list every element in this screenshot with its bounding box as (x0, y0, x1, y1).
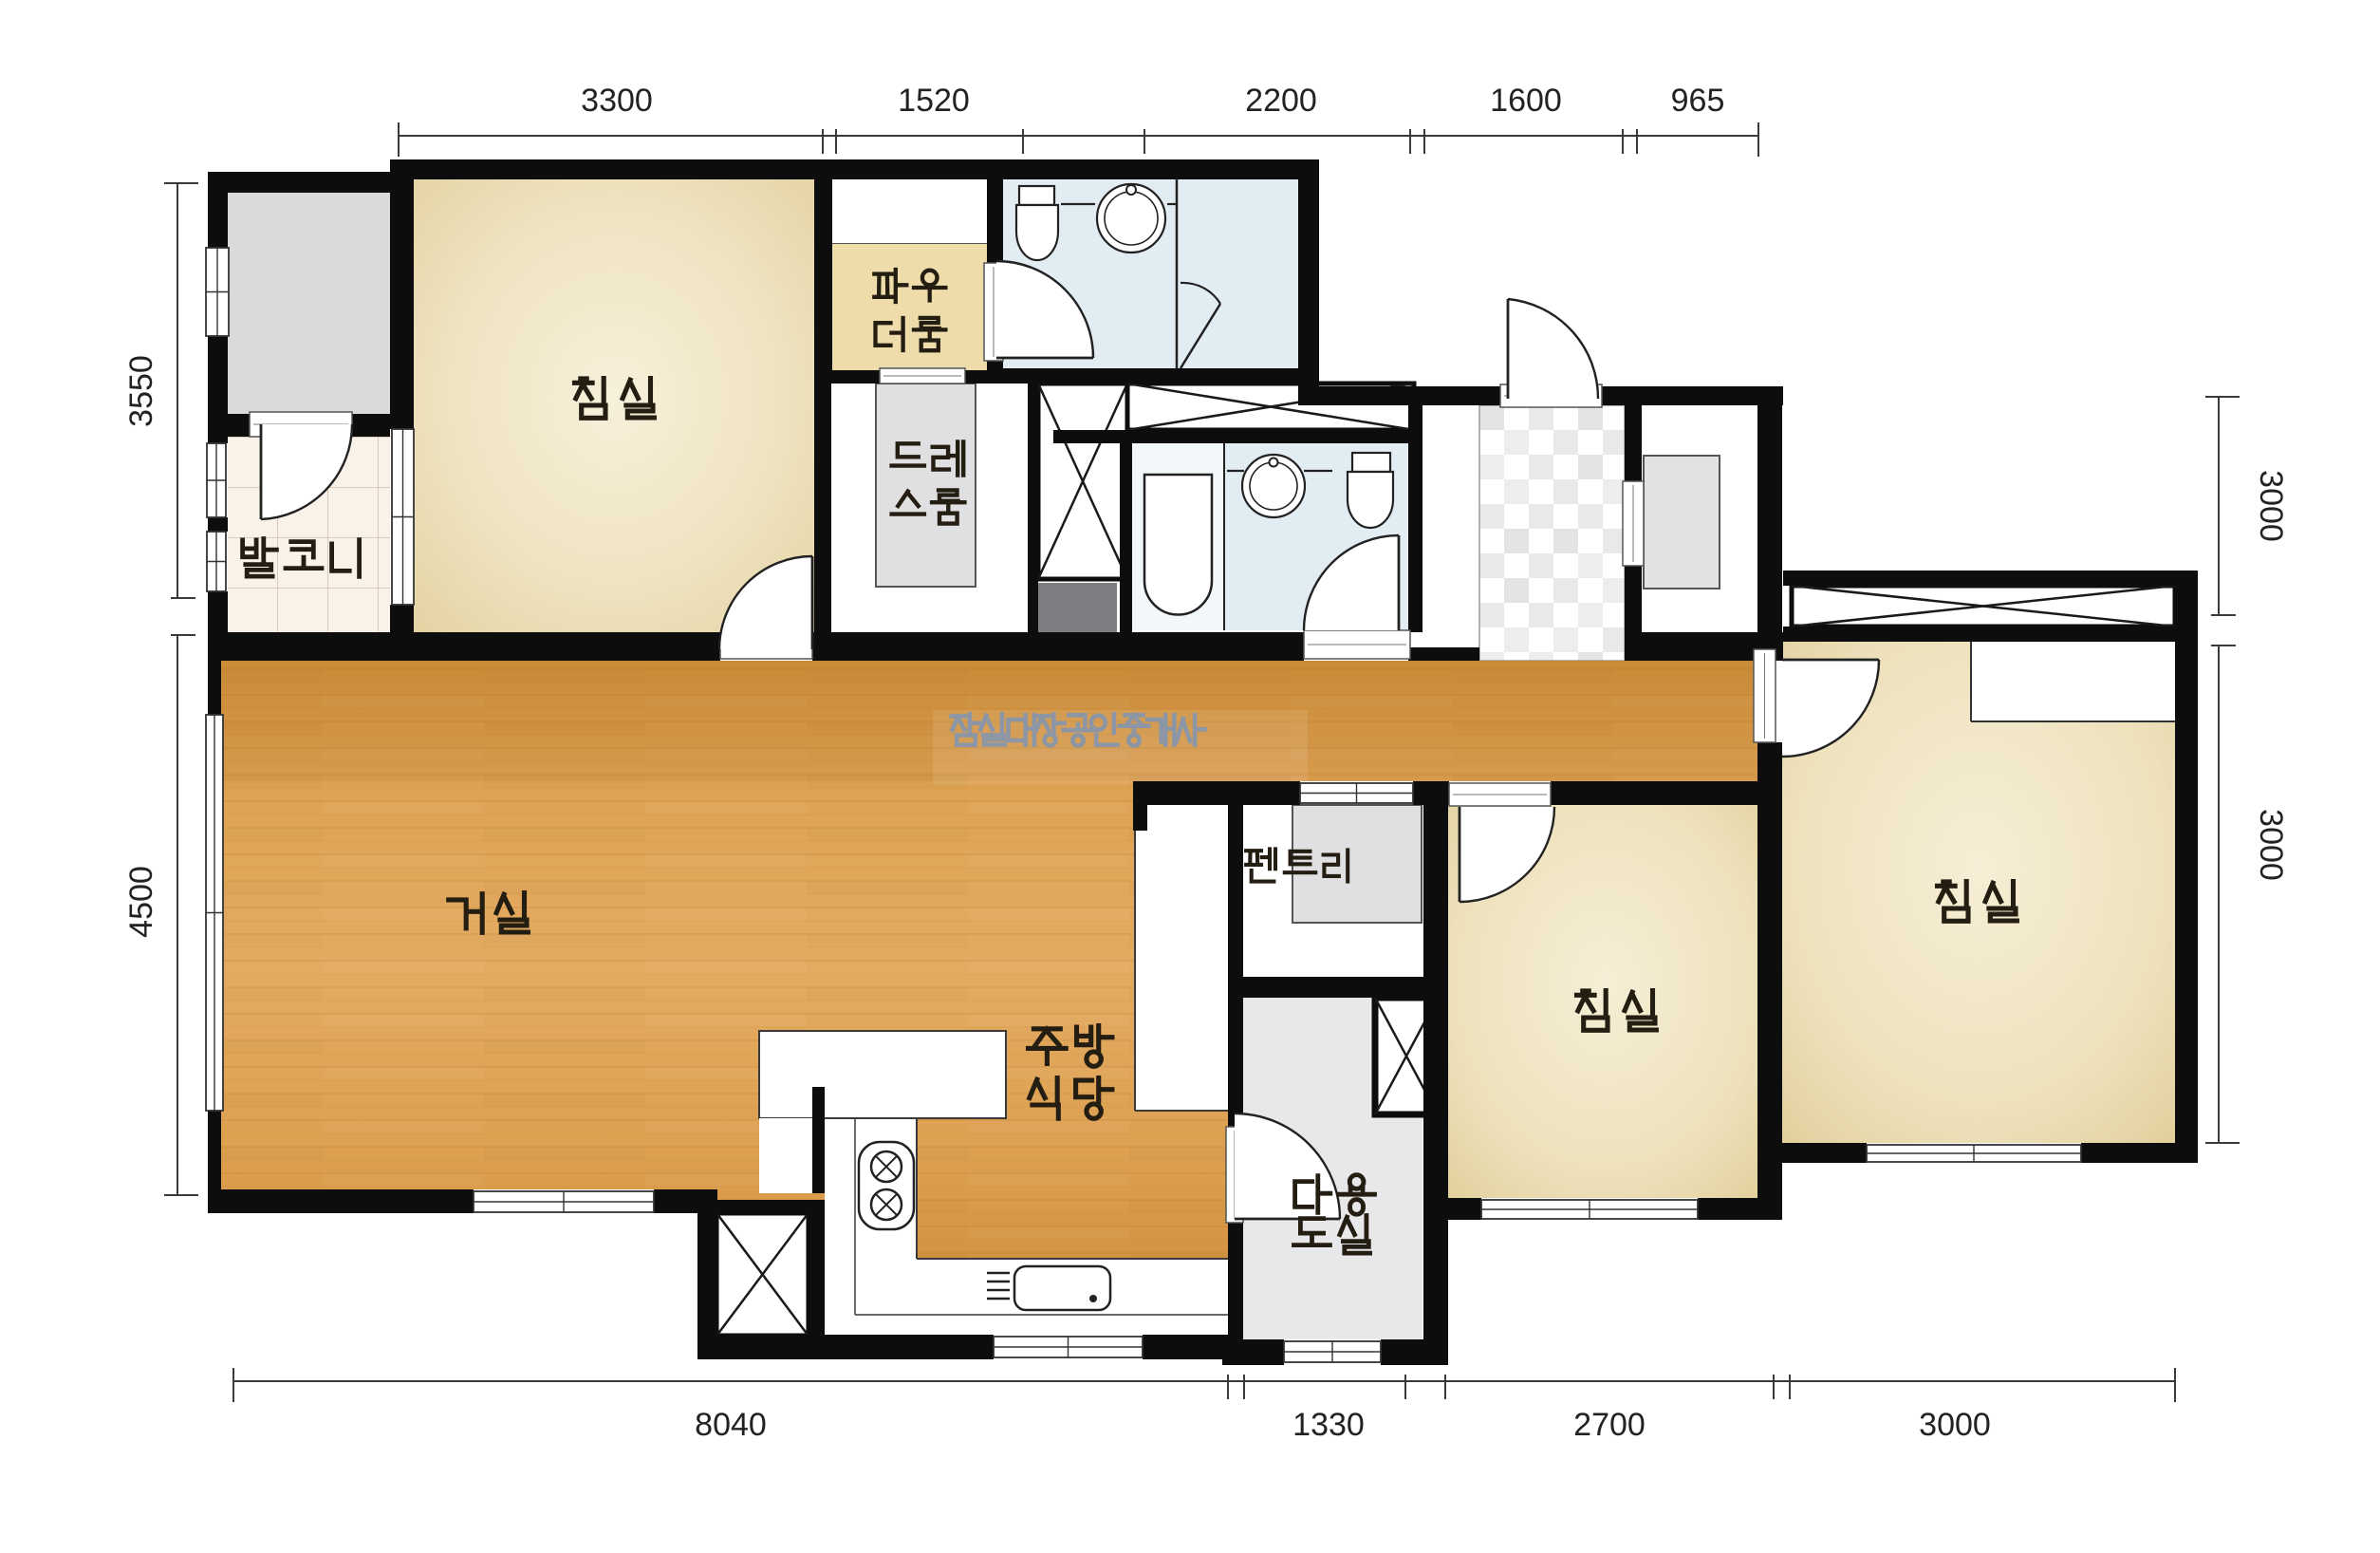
svg-text:2200: 2200 (1245, 83, 1317, 119)
svg-text:1330: 1330 (1292, 1407, 1365, 1443)
svg-text:8040: 8040 (695, 1407, 767, 1443)
svg-text:3550: 3550 (123, 355, 159, 427)
svg-text:3000: 3000 (2253, 809, 2289, 881)
svg-text:965: 965 (1671, 83, 1725, 119)
svg-text:1600: 1600 (1490, 83, 1562, 119)
svg-text:2700: 2700 (1573, 1407, 1646, 1443)
svg-text:3300: 3300 (581, 83, 653, 119)
svg-text:4500: 4500 (123, 866, 159, 938)
svg-text:3000: 3000 (1919, 1407, 1991, 1443)
svg-text:3000: 3000 (2253, 470, 2289, 542)
svg-text:1520: 1520 (898, 83, 970, 119)
